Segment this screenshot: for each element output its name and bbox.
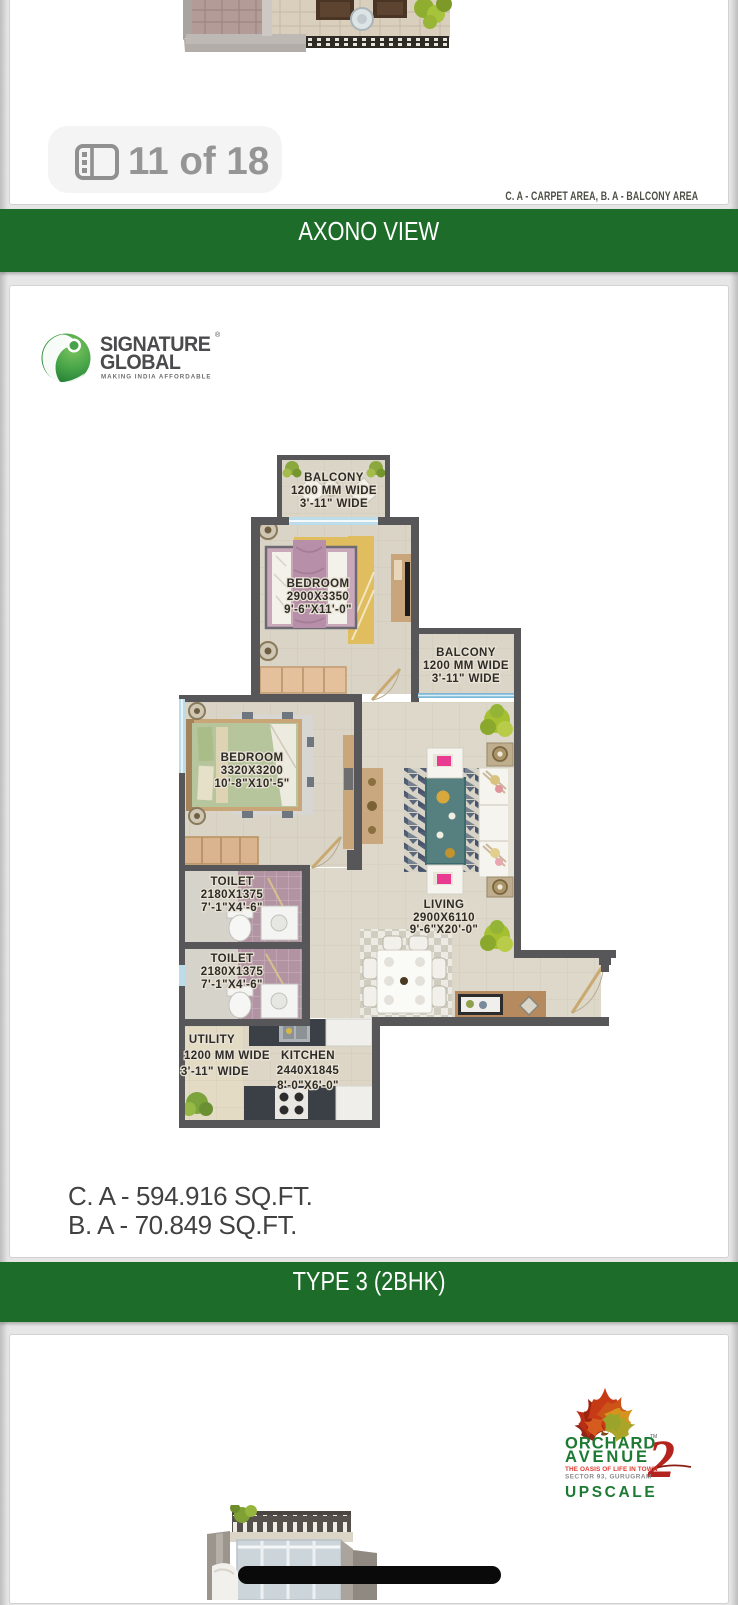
svg-text:1200 MM WIDE: 1200 MM WIDE [423,660,509,672]
svg-text:AVENUE: AVENUE [565,1448,650,1466]
svg-text:1200 MM WIDE: 1200 MM WIDE [291,485,377,497]
svg-text:2180X1375: 2180X1375 [201,889,264,901]
svg-text:9'-6"X20'-0": 9'-6"X20'-0" [410,924,478,936]
svg-text:LIVING: LIVING [424,899,465,911]
svg-text:1200 MM WIDE: 1200 MM WIDE [184,1050,270,1062]
svg-text:2900X3350: 2900X3350 [287,591,349,603]
svg-text:9'-6"X11'-0": 9'-6"X11'-0" [284,604,352,616]
svg-text:BEDROOM: BEDROOM [287,578,350,590]
svg-text:2900X6110: 2900X6110 [413,912,475,924]
svg-text:8'-0"X6'-0": 8'-0"X6'-0" [277,1080,339,1092]
svg-text:BALCONY: BALCONY [304,472,364,484]
svg-text:3'-11" WIDE: 3'-11" WIDE [181,1066,249,1078]
svg-text:TOILET: TOILET [210,953,253,965]
svg-text:3320X3200: 3320X3200 [221,765,283,777]
svg-text:TOILET: TOILET [210,876,253,888]
svg-text:7'-1"X4'-6": 7'-1"X4'-6" [201,979,263,991]
svg-text:3'-11" WIDE: 3'-11" WIDE [300,498,368,510]
svg-text:10'-8"X10'-5": 10'-8"X10'-5" [214,778,289,790]
svg-text:2440X1845: 2440X1845 [277,1065,340,1077]
svg-text:KITCHEN: KITCHEN [281,1050,335,1062]
svg-text:BALCONY: BALCONY [436,647,496,659]
svg-text:SECTOR 93, GURUGRAM: SECTOR 93, GURUGRAM [565,1474,652,1481]
svg-text:7'-1"X4'-6": 7'-1"X4'-6" [201,902,263,914]
svg-text:2180X1375: 2180X1375 [201,966,264,978]
svg-text:BEDROOM: BEDROOM [221,752,284,764]
svg-text:UPSCALE: UPSCALE [565,1484,657,1501]
svg-text:MAKING INDIA AFFORDABLE: MAKING INDIA AFFORDABLE [101,374,212,381]
svg-text:3'-11" WIDE: 3'-11" WIDE [432,673,500,685]
svg-text:GLOBAL: GLOBAL [100,351,180,374]
svg-text:®: ® [215,331,221,339]
svg-text:UTILITY: UTILITY [189,1034,235,1046]
svg-text:THE OASIS OF LIFE IN TOWN: THE OASIS OF LIFE IN TOWN [565,1466,658,1473]
